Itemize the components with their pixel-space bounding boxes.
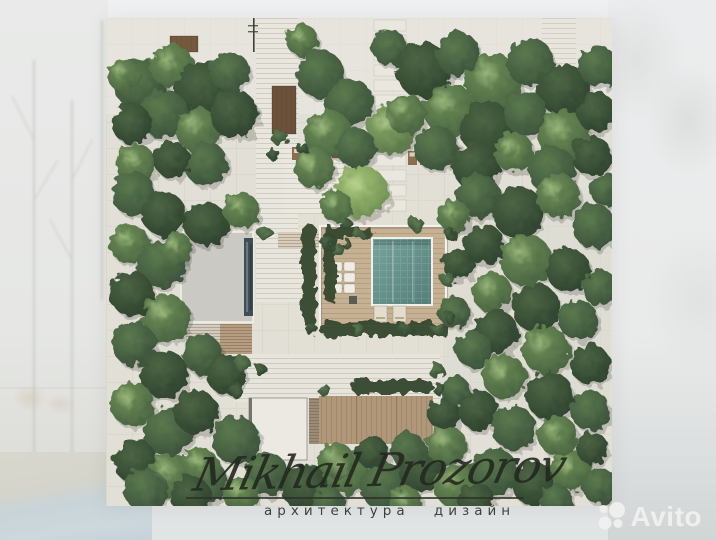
avito-watermark: Avito bbox=[595, 500, 702, 533]
background-photo-right bbox=[608, 0, 716, 540]
avito-brand-text: Avito bbox=[631, 501, 702, 533]
avito-listing-image: Mikhail Prozorov архитектура дизайн Avit… bbox=[0, 0, 716, 540]
avito-logo-icon bbox=[595, 500, 628, 533]
site-plan-rendering bbox=[106, 18, 612, 506]
site-plan-canvas bbox=[106, 18, 612, 506]
